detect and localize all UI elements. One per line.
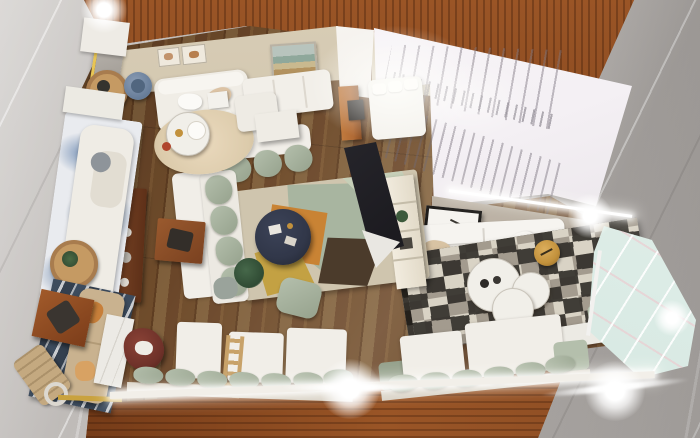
sideboard-decor-white2: [120, 278, 129, 287]
armchair-seat: [131, 79, 145, 93]
navy-coffee-table: [255, 209, 311, 265]
gold-decor: [175, 129, 183, 137]
walnut-coffee-table: [154, 218, 205, 264]
table-book: [268, 224, 282, 235]
stair-light-wash: [410, 60, 530, 140]
bench-cushion: [133, 366, 164, 384]
apartment-top-view: Top-down 3D architectural render of a fu…: [0, 0, 700, 438]
potted-plant: [234, 258, 264, 288]
print-a-motif: [164, 53, 174, 61]
bench-cushion: [165, 368, 196, 386]
rope-ring-decor: [44, 382, 68, 406]
loveseat-pillow-white: [178, 93, 203, 110]
red-decor: [162, 142, 171, 151]
table-book2: [284, 235, 297, 246]
table-decor-dark: [480, 279, 489, 288]
shelf-plant: [395, 210, 408, 223]
table-decor-dark2: [493, 276, 501, 284]
lens-flare-glass-ledge: [585, 361, 645, 421]
wall-print-a: [157, 47, 181, 67]
wall-print-b: [181, 44, 207, 65]
bench-cushion: [197, 370, 228, 388]
small-side-table: [207, 91, 229, 109]
gallery-sofa-seam2: [302, 76, 308, 108]
table-dark-tray: [166, 228, 194, 253]
plant-greenery: [62, 251, 78, 267]
gallery-coffee-table: [254, 110, 299, 143]
table-gold-dot: [287, 223, 293, 229]
lens-flare-wall: [568, 194, 612, 238]
tan-sofa-cushion: [75, 360, 96, 381]
slate-blue-armchair: [124, 72, 152, 100]
shelf-divider: [393, 256, 423, 262]
dark-cushion: [45, 299, 81, 335]
lens-flare-bench: [320, 359, 380, 419]
round-white-table: [166, 112, 210, 156]
stool-mark: [540, 248, 552, 256]
lens-flare-glass-corner: [654, 300, 690, 336]
print-b-motif: [189, 50, 200, 58]
white-jug: [187, 121, 206, 140]
brass-stool: [534, 240, 560, 266]
